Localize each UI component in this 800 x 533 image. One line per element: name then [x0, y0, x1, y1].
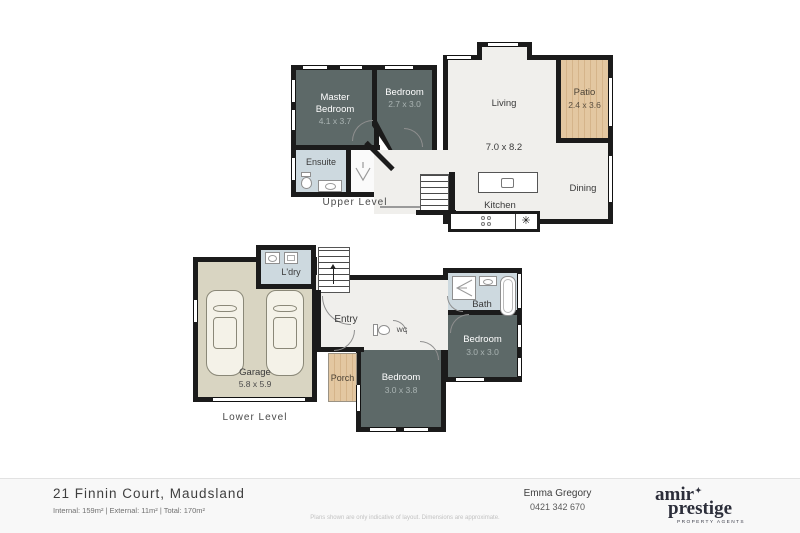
basin-icon [325, 183, 336, 190]
window [291, 80, 296, 102]
laundry-label: L'dry [275, 267, 307, 277]
master-bedroom-label2: Bedroom [316, 104, 355, 116]
ensuite-label: Ensuite [296, 157, 346, 167]
stairs-arrow-head [330, 264, 336, 269]
agent-contact: Emma Gregory 0421 342 670 [500, 488, 615, 512]
window [193, 300, 198, 322]
window [517, 358, 522, 376]
agent-phone: 0421 342 670 [500, 502, 615, 512]
bedroom-rear-label: Bedroom [463, 334, 502, 346]
shower-icon [452, 276, 476, 300]
garage-dims: 5.8 x 5.9 [239, 379, 272, 390]
window [608, 156, 613, 202]
washer-icon [284, 252, 298, 264]
room-laundry: L'dry [256, 245, 316, 289]
window [517, 325, 522, 347]
stairs-arrow [333, 268, 334, 284]
window [456, 377, 484, 382]
toilet-icon [301, 177, 312, 189]
bedroom-upper-dims: 2.7 x 3.0 [388, 99, 421, 110]
window [517, 274, 522, 308]
wc-label: WC [393, 327, 411, 334]
room-patio: Patio 2.4 x 3.6 [556, 55, 613, 143]
room-porch: Porch [328, 353, 357, 402]
laundry-sink-icon [265, 252, 280, 264]
window [291, 110, 296, 130]
room-ensuite: Ensuite [291, 145, 351, 197]
cooktop-icon [481, 216, 491, 226]
window [356, 385, 361, 411]
kitchen-island [478, 172, 538, 193]
footer-bar: 21 Finnin Court, Maudsland Internal: 159… [0, 478, 800, 533]
property-address: 21 Finnin Court, Maudsland [53, 486, 245, 501]
floorplan-page: Living 7.0 x 8.2 Dining Patio 2.4 x 3.6 … [0, 0, 800, 533]
lower-level-label: Lower Level [195, 412, 315, 423]
agent-name: Emma Gregory [500, 488, 615, 499]
opening [441, 150, 450, 174]
car-windshield [213, 305, 237, 312]
porch-label: Porch [331, 373, 355, 383]
bedroom-front-label: Bedroom [382, 372, 421, 384]
window [447, 55, 471, 60]
car-icon [206, 290, 244, 376]
stairs-upper [420, 174, 449, 212]
bathtub-icon [500, 276, 516, 316]
upper-level-label: Upper Level [305, 197, 405, 208]
master-bedroom-label: Master [320, 92, 349, 104]
room-living: Living 7.0 x 8.2 [443, 55, 565, 224]
car-roof [273, 317, 297, 349]
kitchen-label: Kitchen [462, 200, 538, 211]
logo-word-prestige: prestige [668, 501, 765, 516]
window [370, 427, 396, 432]
stairs-lower [318, 247, 350, 293]
car-windshield [273, 305, 297, 312]
entry-label: Entry [320, 314, 372, 325]
wall-segment [350, 275, 448, 280]
window [303, 65, 327, 70]
bedroom-upper-label: Bedroom [385, 87, 424, 99]
window [608, 78, 613, 126]
bedroom-rear-dims: 3.0 x 3.0 [466, 347, 499, 358]
sparkle-icon: ✦ [695, 486, 702, 495]
area-summary: Internal: 159m² | External: 11m² | Total… [53, 506, 205, 515]
opening [556, 145, 568, 217]
sink-icon [501, 178, 514, 188]
patio-dims: 2.4 x 3.6 [568, 100, 601, 111]
living-label: Living [448, 98, 560, 109]
opening [483, 52, 526, 61]
window [488, 42, 518, 47]
garage-label: Garage [239, 367, 271, 379]
shower-icon [353, 160, 373, 182]
appliance-symbol: ✳ [515, 216, 537, 227]
car-icon [266, 290, 304, 376]
window [385, 65, 413, 70]
patio-label: Patio [574, 87, 596, 99]
garage-door [213, 397, 305, 402]
car-roof [213, 317, 237, 349]
bedroom-front-dims: 3.0 x 3.8 [385, 385, 418, 396]
toilet-icon [378, 325, 390, 335]
plan-disclaimer: Plans shown are only indicative of layou… [280, 515, 530, 521]
kitchen-counter: ✳ [448, 211, 540, 232]
dining-label: Dining [558, 183, 608, 194]
logo-tagline: PROPERTY AGENTS [669, 520, 753, 525]
living-dims: 7.0 x 8.2 [448, 142, 560, 153]
window [404, 427, 428, 432]
window [340, 65, 362, 70]
vanity-icon [479, 276, 497, 286]
master-bedroom-dims: 4.1 x 3.7 [319, 116, 352, 127]
agency-logo: amir✦ prestige PROPERTY AGENTS [655, 483, 765, 525]
